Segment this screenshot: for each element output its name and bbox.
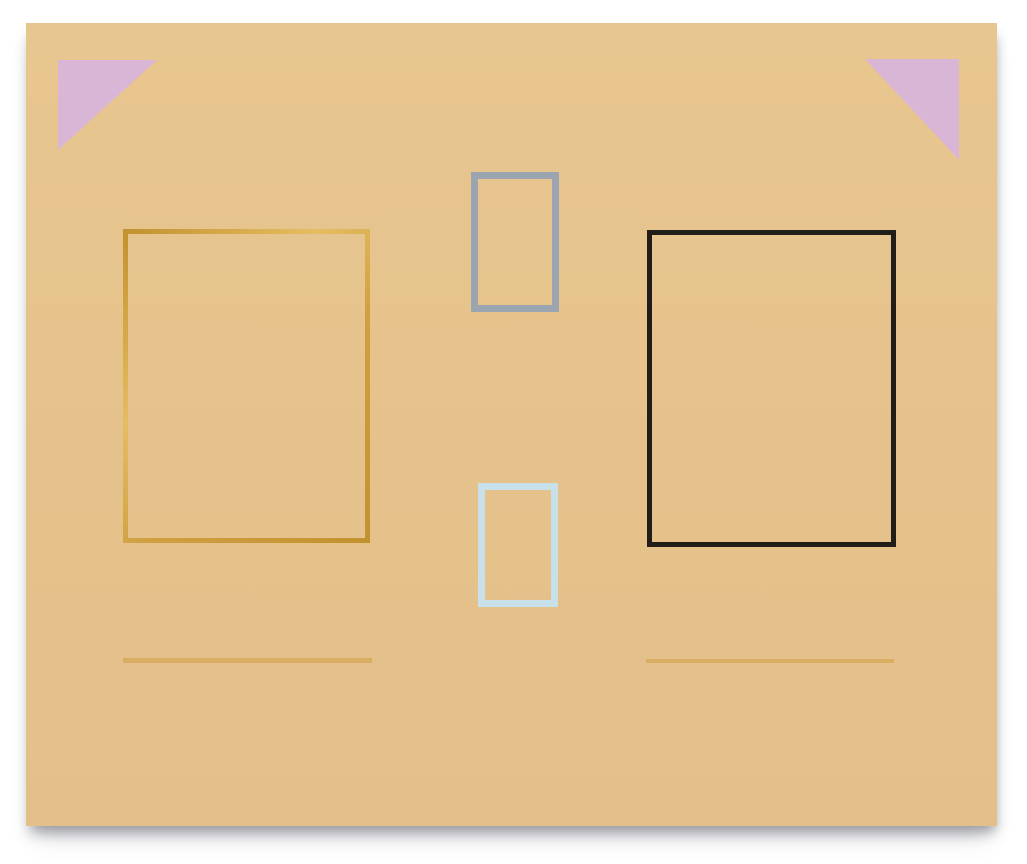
corner-triangle-left bbox=[58, 60, 157, 150]
corner-triangle-right bbox=[865, 59, 959, 160]
gold-underline-left bbox=[123, 658, 372, 663]
gold-underline-right bbox=[646, 659, 894, 663]
artwork-photo bbox=[0, 0, 1027, 864]
gray-frame-rectangle bbox=[471, 172, 559, 312]
gold-frame-rectangle bbox=[123, 229, 370, 543]
lightblue-frame-rectangle bbox=[478, 483, 558, 607]
black-frame-rectangle bbox=[647, 230, 896, 547]
painting-canvas bbox=[26, 23, 997, 826]
